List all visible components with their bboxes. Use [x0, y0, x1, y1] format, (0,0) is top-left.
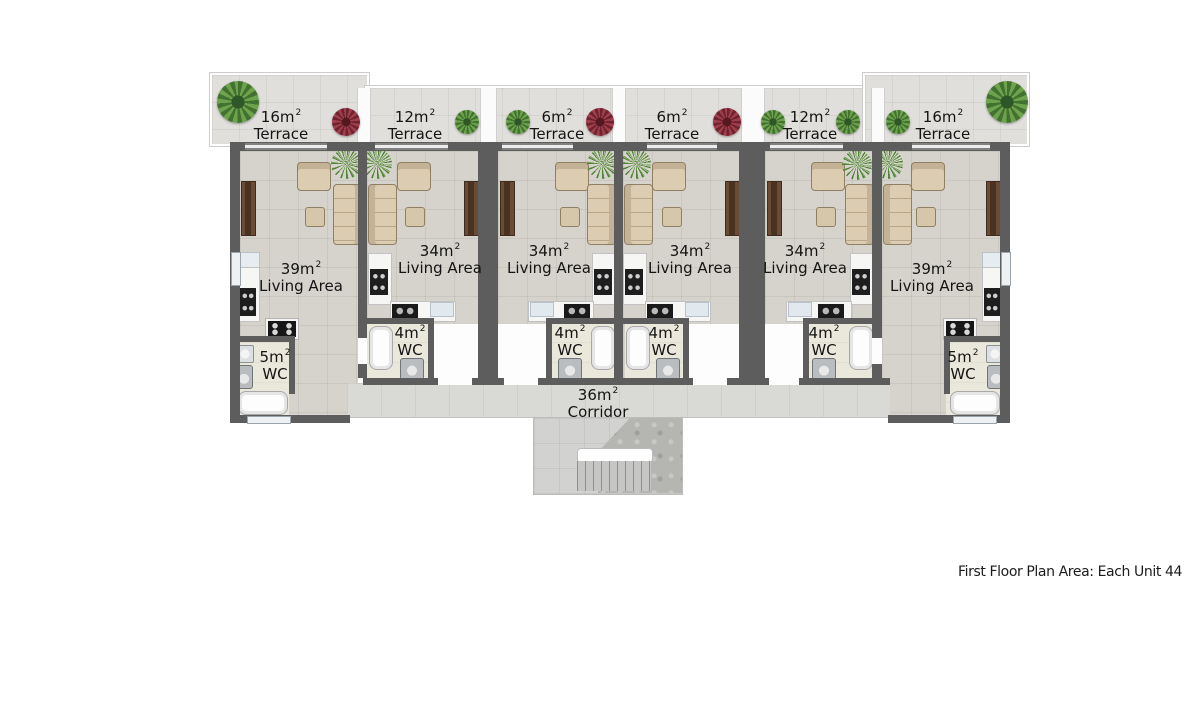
- wc-label: 4m2 WC: [809, 322, 840, 359]
- bathtub: [626, 326, 650, 370]
- armchair: [811, 162, 845, 191]
- plan-caption: First Floor Plan Area: Each Unit 44: [958, 564, 1182, 580]
- oven: [594, 269, 612, 295]
- coffee-table: [916, 207, 936, 227]
- oven: [370, 269, 388, 295]
- oven: [625, 269, 643, 295]
- dishwasher: [430, 302, 454, 317]
- tv-cabinet: [241, 181, 256, 236]
- toilet: [558, 358, 582, 380]
- wc-wall: [944, 336, 1006, 342]
- stairwell: [533, 417, 683, 495]
- patio-door: [912, 143, 990, 150]
- plant-icon: [836, 110, 860, 134]
- toilet: [812, 358, 836, 380]
- coffee-table: [305, 207, 325, 227]
- door-opening: [872, 338, 882, 364]
- sofa: [587, 184, 616, 245]
- door-opening: [693, 378, 727, 385]
- living-area-label: 34m2 Living Area: [648, 240, 732, 277]
- terrace-divider: [480, 88, 497, 142]
- wc-wall: [428, 318, 434, 380]
- sofa: [368, 184, 397, 245]
- coffee-table: [816, 207, 836, 227]
- wc-label: 4m2 WC: [649, 322, 680, 359]
- oven: [852, 269, 870, 295]
- stairs: [577, 461, 651, 491]
- armchair: [911, 162, 945, 191]
- coffee-table: [405, 207, 425, 227]
- terrace-label: 16m2 Terrace: [254, 106, 309, 143]
- unit-2-hallway: [434, 324, 478, 380]
- unit-5-hallway: [765, 324, 803, 380]
- wall-top: [230, 142, 1010, 151]
- oven: [984, 288, 1000, 316]
- wc-wall: [546, 318, 552, 380]
- terrace-label: 16m2 Terrace: [916, 106, 971, 143]
- armchair: [297, 162, 331, 191]
- bathtub: [849, 326, 873, 370]
- armchair: [555, 162, 589, 191]
- window: [953, 416, 997, 424]
- patio-door: [375, 143, 448, 150]
- wc-label: 5m2 WC: [260, 346, 291, 383]
- kitchen-sink: [392, 304, 418, 318]
- window: [1001, 252, 1011, 286]
- bathtub: [950, 391, 1000, 415]
- plant-icon: [761, 110, 785, 134]
- plant-icon: [713, 108, 741, 136]
- terrace-divider: [741, 88, 765, 142]
- living-area-label: 34m2 Living Area: [507, 240, 591, 277]
- floor-plan: 16m2 Terrace 12m2 Terrace 6m2 Terrace 6m…: [0, 0, 1200, 724]
- door-opening: [358, 338, 367, 364]
- bathtub: [369, 326, 393, 370]
- terrace-label: 12m2 Terrace: [388, 106, 443, 143]
- unit-3-hallway: [498, 324, 546, 380]
- terrace-divider: [357, 88, 371, 142]
- terrace-divider: [612, 88, 626, 142]
- coffee-table: [662, 207, 682, 227]
- bathtub: [238, 391, 288, 415]
- tv-cabinet: [767, 181, 782, 236]
- wc-wall: [683, 318, 689, 380]
- living-area-label: 34m2 Living Area: [398, 240, 482, 277]
- tv-cabinet: [986, 181, 1001, 236]
- door-opening: [438, 378, 472, 385]
- corridor-label: 36m2 Corridor: [568, 384, 629, 421]
- plant-icon: [455, 110, 479, 134]
- living-area-label: 34m2 Living Area: [763, 240, 847, 277]
- plant-sprig-icon: [331, 149, 361, 179]
- oven: [240, 288, 256, 316]
- plant-icon: [217, 81, 259, 123]
- plant-sprig-icon: [587, 149, 617, 179]
- plant-icon: [586, 108, 614, 136]
- door-opening: [504, 378, 538, 385]
- window: [247, 416, 291, 424]
- unit-4-hallway: [689, 324, 739, 380]
- plant-icon: [986, 81, 1028, 123]
- armchair: [652, 162, 686, 191]
- armchair: [397, 162, 431, 191]
- plant-sprig-icon: [842, 150, 872, 180]
- coffee-table: [560, 207, 580, 227]
- living-area-label: 39m2 Living Area: [259, 258, 343, 295]
- patio-door: [770, 143, 843, 150]
- wc-label: 5m2 WC: [948, 346, 979, 383]
- tv-cabinet: [725, 181, 740, 236]
- kitchen-sink: [564, 304, 590, 318]
- kitchen-sink: [818, 304, 844, 318]
- bathtub: [591, 326, 615, 370]
- dishwasher: [530, 302, 554, 317]
- window: [231, 252, 241, 286]
- tv-cabinet: [464, 181, 479, 236]
- wall-unit3-unit4: [614, 151, 623, 378]
- plant-icon: [506, 110, 530, 134]
- wc-label: 4m2 WC: [395, 322, 426, 359]
- wc-label: 4m2 WC: [555, 322, 586, 359]
- patio-door: [502, 143, 573, 150]
- dishwasher: [788, 302, 812, 317]
- wall-block2-block3: [739, 151, 765, 378]
- plant-icon: [332, 108, 360, 136]
- wc-wall: [233, 336, 295, 342]
- sofa: [624, 184, 653, 245]
- terrace-divider: [871, 88, 885, 142]
- patio-door: [245, 143, 327, 150]
- living-area-label: 39m2 Living Area: [890, 258, 974, 295]
- terrace-label: 6m2 Terrace: [645, 106, 700, 143]
- terrace-label: 12m2 Terrace: [783, 106, 838, 143]
- sofa: [883, 184, 912, 245]
- plant-icon: [886, 110, 910, 134]
- terrace-label: 6m2 Terrace: [530, 106, 585, 143]
- patio-door: [647, 143, 717, 150]
- dishwasher: [685, 302, 709, 317]
- toilet: [400, 358, 424, 380]
- tv-cabinet: [500, 181, 515, 236]
- plant-sprig-icon: [621, 149, 651, 179]
- door-opening: [769, 378, 799, 385]
- sofa: [845, 184, 874, 245]
- kitchen-sink: [647, 304, 673, 318]
- toilet: [656, 358, 680, 380]
